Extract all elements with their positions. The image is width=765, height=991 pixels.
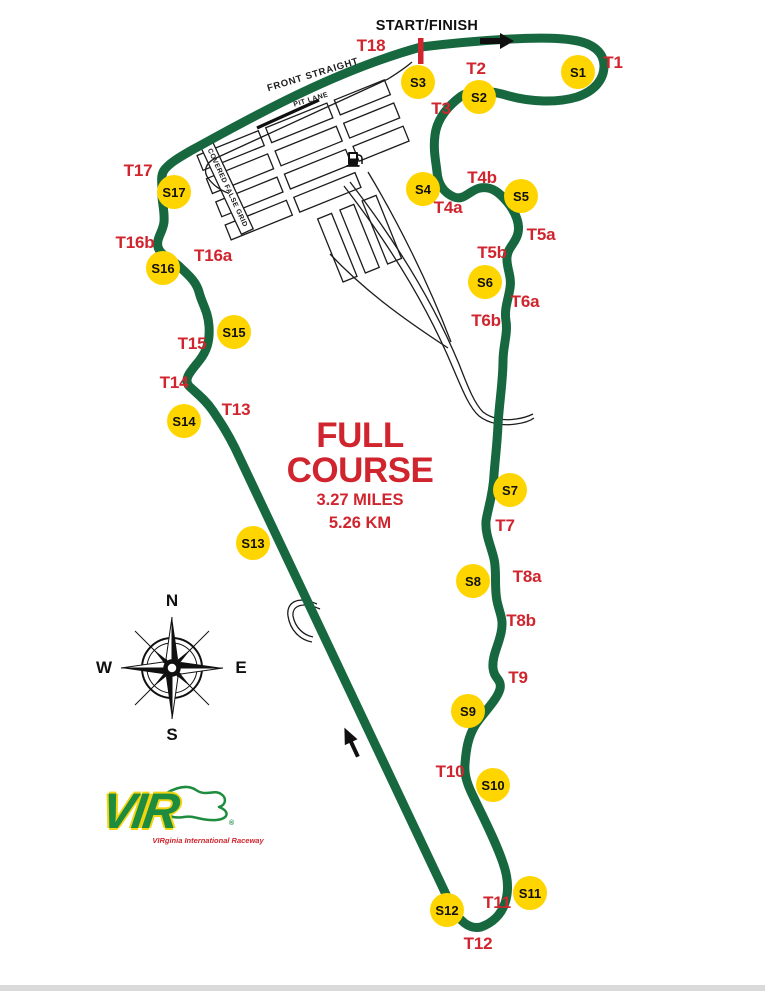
compass-north-label: N <box>166 591 178 611</box>
station-marker-s14: S14 <box>167 404 201 438</box>
turn-label-t16a: T16a <box>194 246 232 266</box>
turn-label-t16b: T16b <box>116 233 155 253</box>
turn-label-t5b: T5b <box>477 243 507 263</box>
station-marker-s11: S11 <box>513 876 547 910</box>
turn-label-t1: T1 <box>603 53 622 73</box>
station-marker-s12: S12 <box>430 893 464 927</box>
turn-label-t11: T11 <box>483 893 511 913</box>
turn-label-t5a: T5a <box>527 225 556 245</box>
station-marker-s1: S1 <box>561 55 595 89</box>
compass-east-label: E <box>235 658 246 678</box>
turn-label-t14: T14 <box>160 373 189 393</box>
compass-west-label: W <box>96 658 112 678</box>
station-marker-s7: S7 <box>493 473 527 507</box>
course-length-km: 5.26 KM <box>287 513 434 534</box>
registered-mark: ® <box>229 820 234 827</box>
turn-label-t2: T2 <box>466 59 485 79</box>
station-marker-s9: S9 <box>451 694 485 728</box>
turn-label-t4b: T4b <box>467 168 497 188</box>
vir-logo-tagline: VIRginia International Raceway <box>152 836 264 845</box>
station-marker-s3: S3 <box>401 65 435 99</box>
station-marker-s16: S16 <box>146 251 180 285</box>
turn-label-t3: T3 <box>431 99 450 119</box>
station-marker-s8: S8 <box>456 564 490 598</box>
turn-label-t18: T18 <box>357 36 386 56</box>
page-bottom-edge <box>0 985 765 991</box>
turn-label-t7: T7 <box>495 516 514 536</box>
turn-label-t13: T13 <box>222 400 251 420</box>
turn-label-t8b: T8b <box>506 611 536 631</box>
course-name-line2: COURSE <box>287 453 434 488</box>
station-marker-s5: S5 <box>504 179 538 213</box>
turn-label-t6b: T6b <box>471 311 501 331</box>
course-length-miles: 3.27 MILES <box>287 490 434 511</box>
station-marker-s15: S15 <box>217 315 251 349</box>
turn-label-t6a: T6a <box>511 292 540 312</box>
station-marker-s6: S6 <box>468 265 502 299</box>
turn-label-t10: T10 <box>436 762 465 782</box>
station-marker-s13: S13 <box>236 526 270 560</box>
start-finish-label: START/FINISH <box>376 18 478 34</box>
station-marker-s2: S2 <box>462 80 496 114</box>
course-name-line1: FULL <box>287 418 434 453</box>
course-title-block: FULL COURSE 3.27 MILES 5.26 KM <box>287 418 434 534</box>
station-marker-s17: S17 <box>157 175 191 209</box>
turn-label-t15: T15 <box>178 334 207 354</box>
turn-label-t4a: T4a <box>434 198 463 218</box>
track-map: S1S2S3S4S5S6S7S8S9S10S11S12S13S14S15S16S… <box>0 0 765 991</box>
turn-label-t9: T9 <box>508 668 527 688</box>
turn-label-t17: T17 <box>124 161 153 181</box>
turn-label-t12: T12 <box>464 934 493 954</box>
turn-label-t8a: T8a <box>513 567 542 587</box>
compass-south-label: S <box>166 725 177 745</box>
vir-logo: VIR <box>98 782 181 840</box>
station-marker-s10: S10 <box>476 768 510 802</box>
